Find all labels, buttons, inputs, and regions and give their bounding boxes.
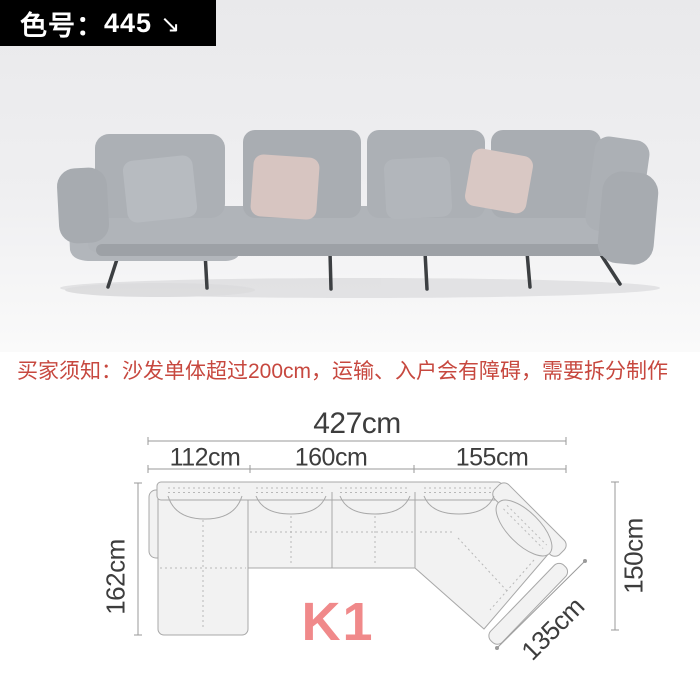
plan-backrest-band <box>157 482 502 500</box>
dimension-right-depth: 150cm <box>619 518 650 594</box>
base-rail <box>96 244 628 256</box>
dimension-diagram: 427cm 112cm 160cm 155cm 162cm 150cm 135c… <box>0 396 700 700</box>
product-photo <box>0 0 700 352</box>
dimension-total-width: 427cm <box>313 407 401 441</box>
badge-value: 445 <box>104 8 152 39</box>
dimension-segment-middle: 160cm <box>295 444 368 473</box>
dimension-segment-left: 112cm <box>170 444 241 473</box>
south-east-arrow-icon: ↘ <box>160 10 181 39</box>
sofa-photo-illustration <box>0 0 700 352</box>
right-armrest <box>596 170 660 267</box>
buyer-notice-text: 买家须知：沙发单体超过200cm，运输、入户会有障碍，需要拆分制作 <box>17 357 693 387</box>
dimension-segment-right: 155cm <box>456 444 529 473</box>
plan-chaise <box>158 482 248 635</box>
color-code-badge: 色号：445 ↘ <box>0 0 216 46</box>
model-label: K1 <box>301 591 374 653</box>
left-armrest <box>56 167 110 245</box>
floor-shadow <box>60 278 660 298</box>
badge-label: 色号： <box>20 4 104 43</box>
sofa-body <box>56 130 660 266</box>
dimension-left-depth: 162cm <box>101 539 132 615</box>
